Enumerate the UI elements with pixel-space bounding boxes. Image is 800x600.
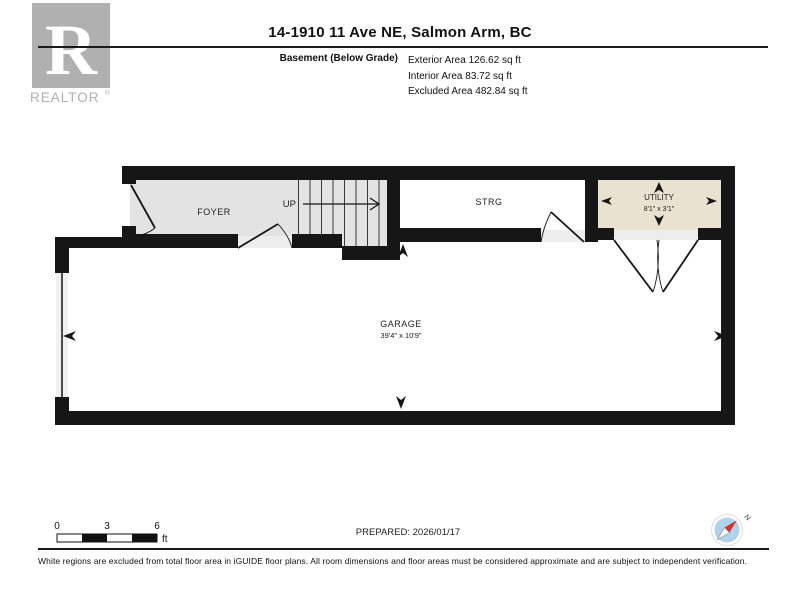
scale-tick-0: 0	[54, 521, 60, 532]
floorplan-drawing: FOYER UP STRG UTILITY 8'1" x 3'1" GARAGE…	[0, 0, 800, 600]
strg-label: STRG	[475, 197, 502, 207]
utility-label: UTILITY	[644, 193, 674, 202]
scale-tick-6: 6	[154, 521, 160, 532]
garage-label: GARAGE	[380, 319, 422, 329]
footer-divider	[38, 548, 769, 550]
scale-bar-segment	[132, 534, 157, 542]
disclaimer-text: White regions are excluded from total fl…	[38, 556, 783, 566]
garage-dims: 39'4" x 10'9"	[380, 331, 421, 340]
up-label: UP	[283, 199, 296, 210]
scale-tick-3: 3	[104, 521, 110, 532]
utility-dims: 8'1" x 3'1"	[644, 206, 675, 213]
scale-unit: ft	[162, 534, 168, 545]
prepared-date: PREPARED: 2026/01/17	[293, 527, 523, 538]
compass-icon: N	[703, 506, 759, 554]
scale-bar: 0 3 6 ft	[50, 518, 180, 550]
floorplan-page: R REALTOR ® 14-1910 11 Ave NE, Salmon Ar…	[0, 0, 800, 600]
header-divider	[38, 46, 768, 48]
scale-bar-segment	[82, 534, 107, 542]
foyer-label: FOYER	[197, 207, 231, 217]
compass-north-label: N	[742, 512, 752, 523]
